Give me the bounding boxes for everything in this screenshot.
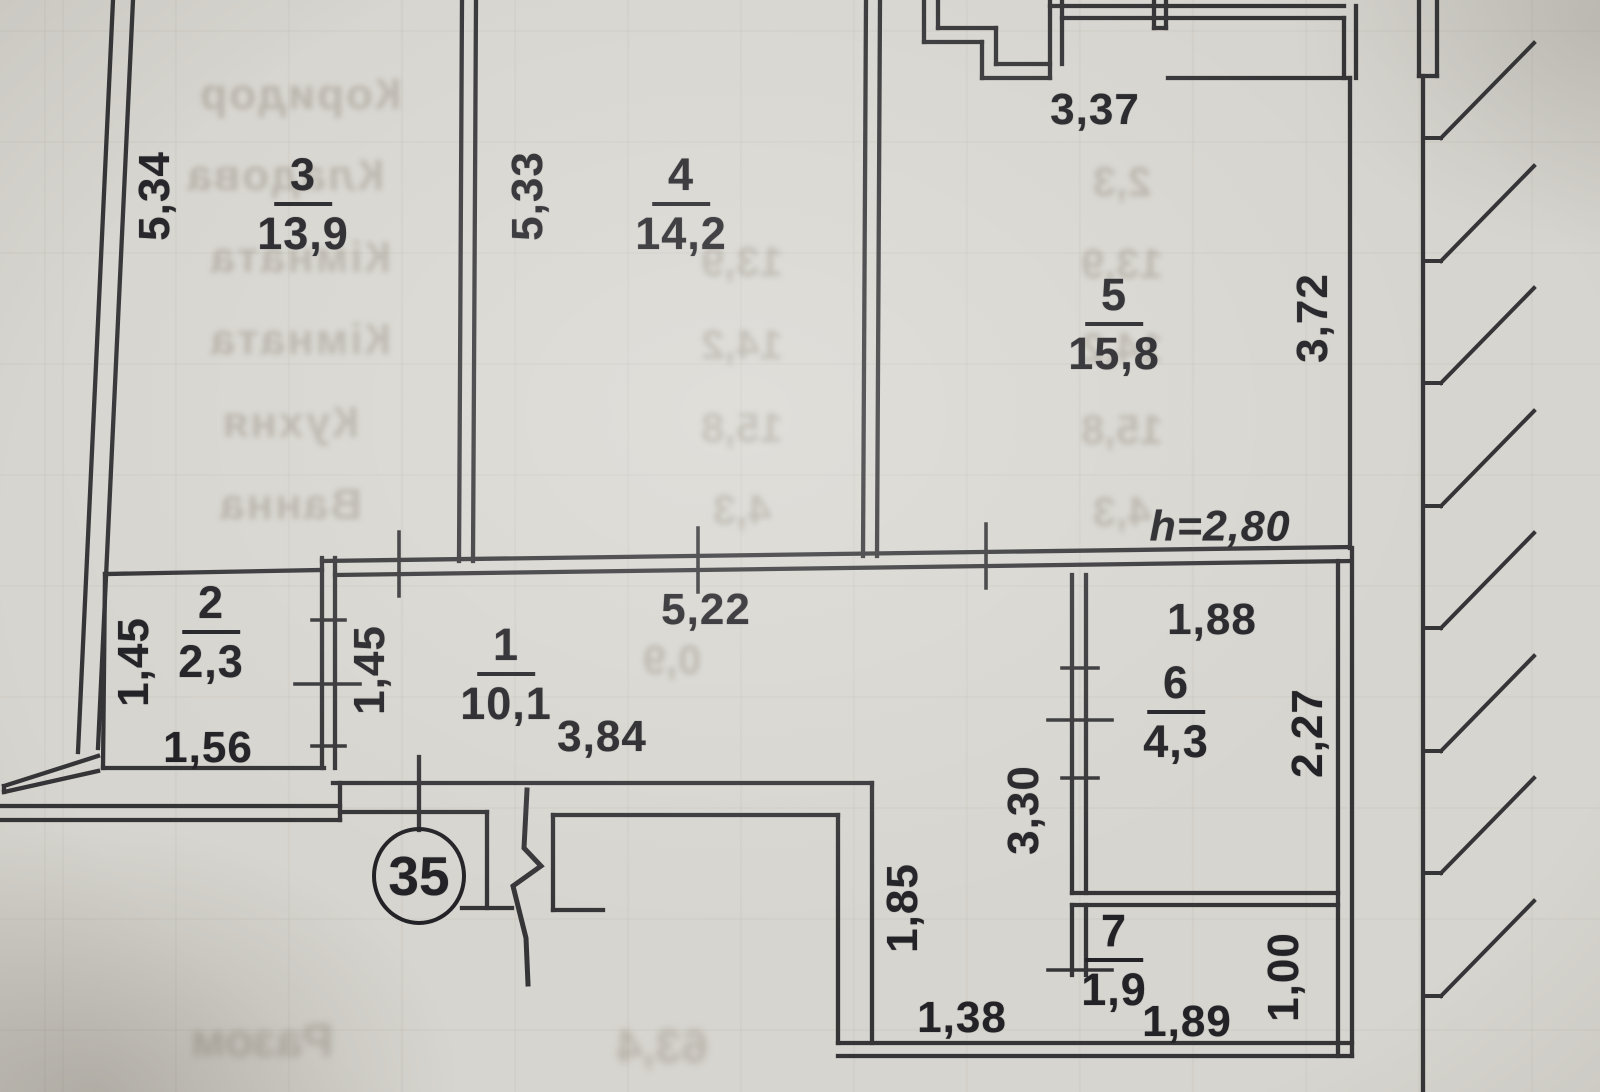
floor-plan-scan: Коридор Кладова 2,3 Кімната 13,9 13,9 Кі… [0,0,1600,1092]
photo-vignette [0,0,1600,1092]
